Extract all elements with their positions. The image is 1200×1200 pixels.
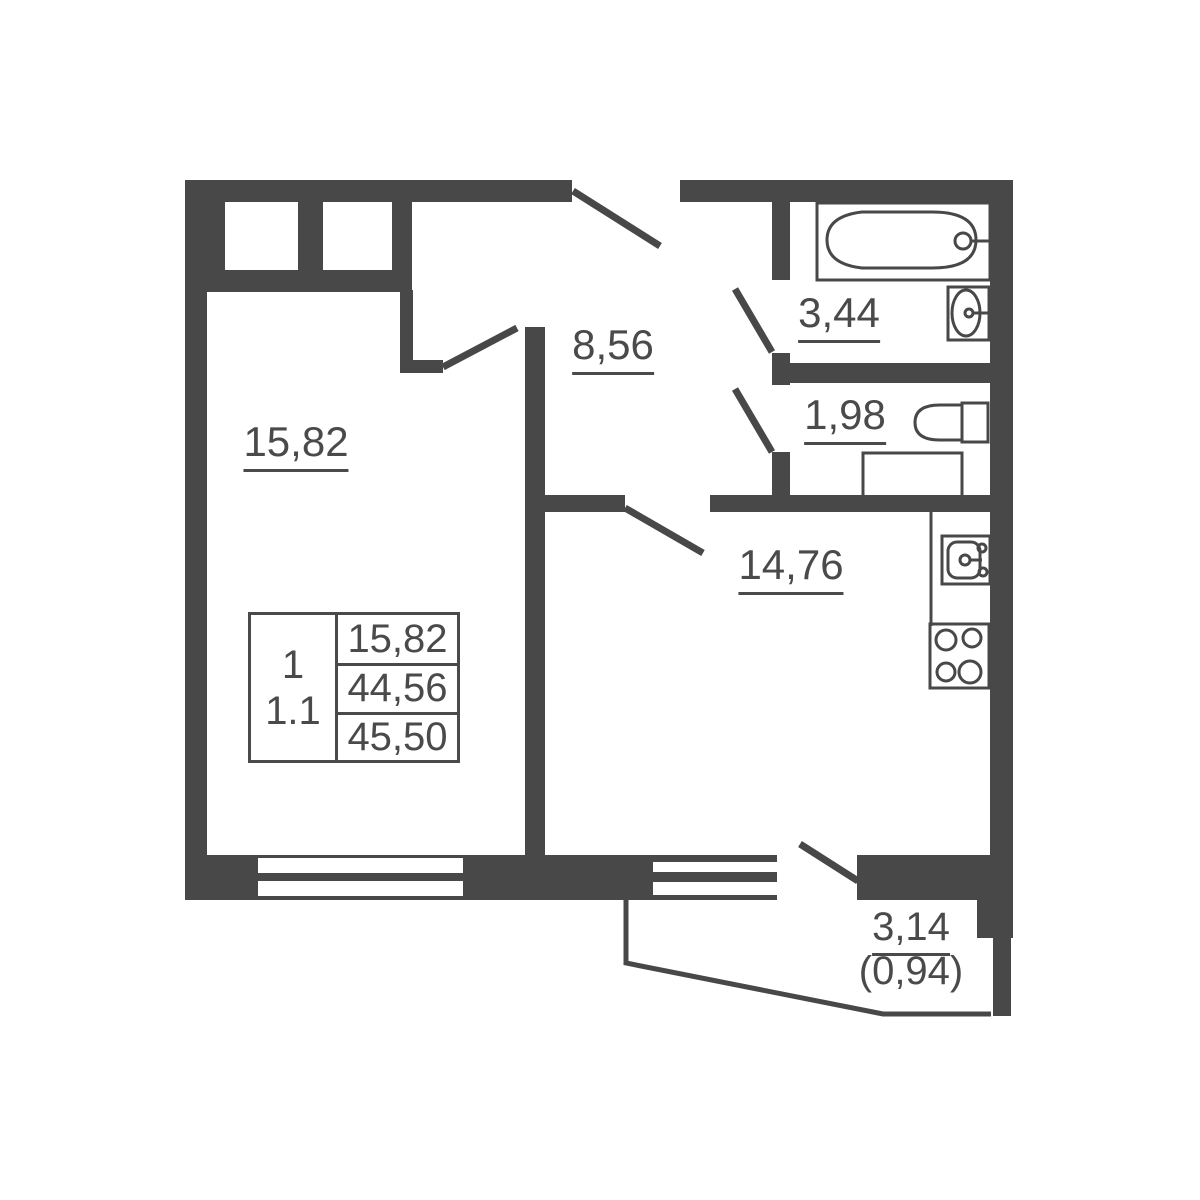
kitchen-living-label: 14,76 <box>738 544 843 586</box>
balcony-label: 3,14 <box>872 907 950 947</box>
toilet-area: 1,98 <box>804 391 886 445</box>
living-area-value: 15,82 <box>338 615 457 663</box>
washbasin-icon <box>948 287 989 340</box>
hallway-label: 8,56 <box>572 324 654 366</box>
living-room-label: 15,82 <box>243 421 348 463</box>
plan-type: 1.1 <box>265 688 321 734</box>
info-table-areas-column: 15,82 44,56 45,50 <box>338 615 457 760</box>
info-table-left-cell: 1 1.1 <box>251 615 338 760</box>
toilet-icon <box>915 403 988 442</box>
door-lines <box>443 191 858 881</box>
kitchen-door-line <box>625 508 703 553</box>
stove-icon <box>930 624 989 688</box>
balcony-door-line <box>800 844 858 881</box>
bathroom-label: 3,44 <box>798 292 880 334</box>
entrance-door-line <box>573 191 660 246</box>
apartment-area-value: 44,56 <box>338 663 457 711</box>
washing-machine-icon <box>863 453 962 497</box>
kitchen-living-area: 14,76 <box>738 541 843 595</box>
total-area-value: 45,50 <box>338 712 457 760</box>
floor-plan: 15,82 8,56 3,44 1,98 14,76 3,14 (0,94) 1… <box>0 0 1200 1200</box>
fixtures-and-lines <box>0 0 1200 1200</box>
toilet-label: 1,98 <box>804 394 886 436</box>
kitchen-sink-icon <box>931 512 990 626</box>
apartment-info-table: 1 1.1 15,82 44,56 45,50 <box>248 612 460 763</box>
toilet-door-line <box>735 389 772 452</box>
living-room-area: 15,82 <box>243 418 348 472</box>
rooms-count: 1 <box>282 642 304 688</box>
bathtub-icon <box>817 203 990 280</box>
bathroom-door-line <box>735 289 772 352</box>
balcony-area-coeff: (0,94) <box>859 949 964 993</box>
living-room-door-line <box>443 328 517 367</box>
bathroom-area: 3,44 <box>798 289 880 343</box>
hallway-area: 8,56 <box>572 321 654 375</box>
balcony-coeff-label: (0,94) <box>859 951 964 991</box>
